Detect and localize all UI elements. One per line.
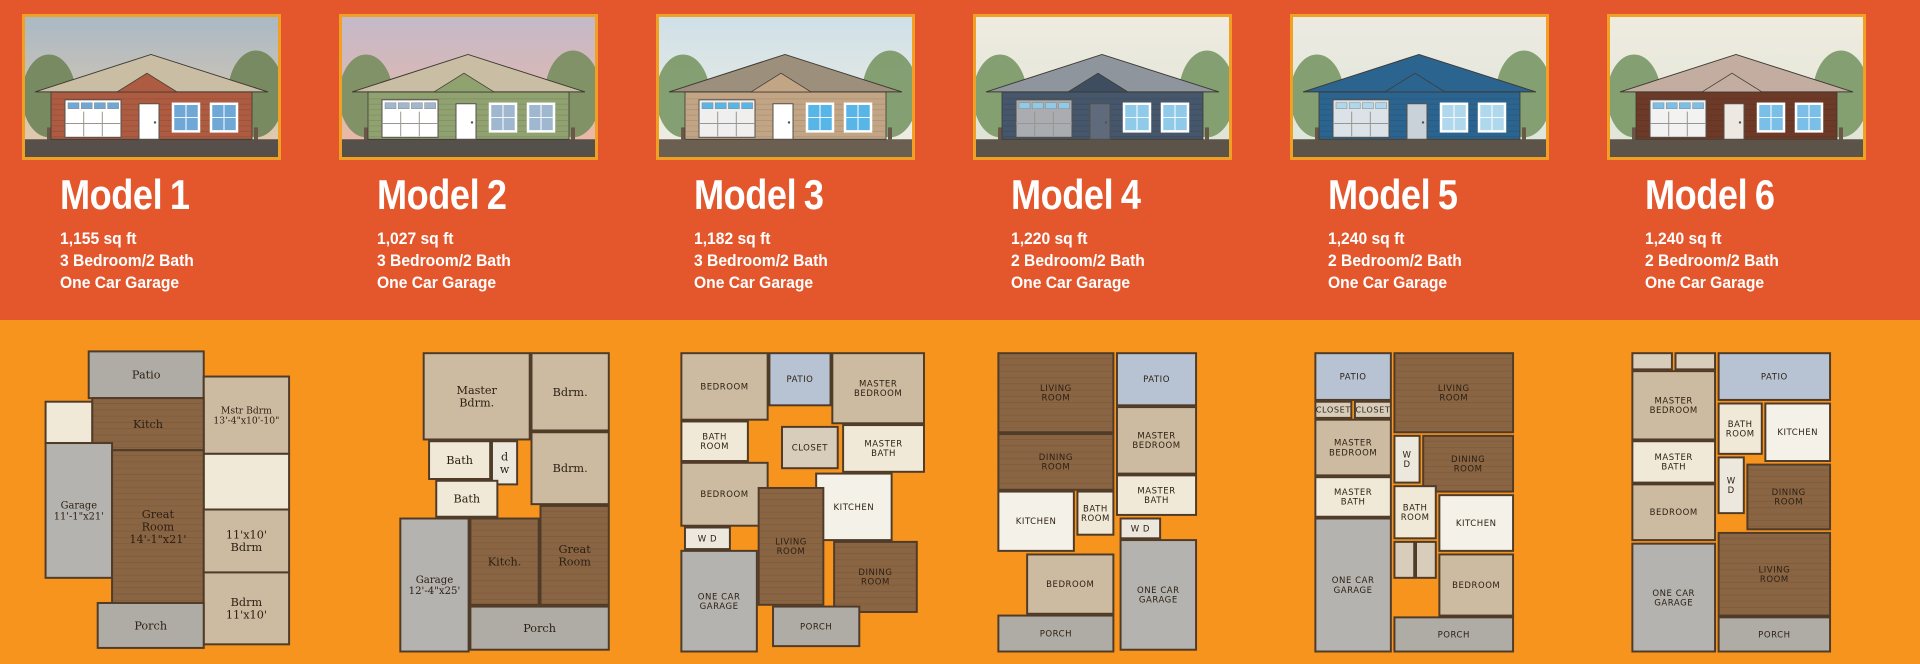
svg-text:KITCHEN: KITCHEN bbox=[1456, 519, 1497, 529]
room-closet: CLOSET bbox=[1355, 402, 1391, 418]
model-2-card: Model2 1,027 sq ft 3 Bedroom/2 Bath One … bbox=[339, 0, 630, 664]
model-2-elevation-image bbox=[339, 14, 598, 160]
model-sqft: 1,027 sq ft bbox=[377, 228, 511, 250]
tan-siding-house-elevation bbox=[659, 17, 912, 157]
room-dining: DININGROOM bbox=[1423, 436, 1513, 492]
room-bedroom: BEDROOM bbox=[1632, 484, 1715, 540]
svg-text:Bdrm11'x10': Bdrm11'x10' bbox=[226, 596, 267, 622]
model-garage: One Car Garage bbox=[1328, 272, 1462, 294]
room-master: MASTERBATH bbox=[1117, 475, 1196, 515]
model-title-word: Model bbox=[694, 171, 796, 218]
model-bedbath: 3 Bedroom/2 Bath bbox=[694, 250, 828, 272]
model-1-card: Model1 1,155 sq ft 3 Bedroom/2 Bath One … bbox=[22, 0, 313, 664]
room-kitchen: KITCHEN bbox=[816, 474, 891, 540]
blue-board-and-batten-house-elevation bbox=[1293, 17, 1546, 157]
room-bedroom: BEDROOM bbox=[1027, 554, 1113, 613]
red-siding-cottage-elevation bbox=[25, 17, 278, 157]
svg-text:BEDROOM: BEDROOM bbox=[1046, 580, 1094, 590]
room-porch: Porch bbox=[97, 603, 203, 648]
room-d: dw bbox=[492, 441, 517, 484]
svg-text:LIVINGROOM: LIVINGROOM bbox=[1758, 565, 1790, 585]
svg-text:W D: W D bbox=[697, 534, 716, 544]
room-closet bbox=[1416, 542, 1436, 578]
ground bbox=[342, 139, 595, 157]
model-6-floorplan: MASTERBEDROOMPATIOBATHROOMKITCHENMASTERB… bbox=[1607, 346, 1898, 656]
model-garage: One Car Garage bbox=[377, 272, 511, 294]
room-great: GreatRoom bbox=[540, 506, 608, 605]
model-1-floorplan: PatioMstr Bdrm13'-4"x10'-10"KitchGarage1… bbox=[22, 346, 313, 656]
model-specs: 1,155 sq ft 3 Bedroom/2 Bath One Car Gar… bbox=[60, 228, 194, 294]
model-3-elevation-image bbox=[656, 14, 915, 160]
model-4-elevation-image bbox=[973, 14, 1232, 160]
room-bdrm-: Bdrm. bbox=[531, 432, 608, 504]
svg-text:ONE CARGARAGE: ONE CARGARAGE bbox=[1137, 586, 1180, 606]
room-bath: BATHROOM bbox=[1077, 492, 1113, 535]
model-homes-brochure: Model1 1,155 sq ft 3 Bedroom/2 Bath One … bbox=[0, 0, 1920, 664]
room-porch: PORCH bbox=[998, 616, 1113, 652]
room-living: LIVINGROOM bbox=[758, 488, 823, 605]
model-6-elevation-image bbox=[1607, 14, 1866, 160]
room-kitchen: KITCHEN bbox=[1765, 404, 1830, 462]
model-6-card: Model6 1,240 sq ft 2 Bedroom/2 Bath One … bbox=[1607, 0, 1898, 664]
svg-text:ONE CARGARAGE: ONE CARGARAGE bbox=[1652, 589, 1695, 609]
model-title-number: 3 bbox=[804, 171, 824, 218]
front-door bbox=[456, 104, 476, 139]
model-title-word: Model bbox=[60, 171, 162, 218]
room-living: LIVINGROOM bbox=[1718, 533, 1829, 616]
room-bedroom: BEDROOM bbox=[681, 353, 767, 419]
svg-text:BEDROOM: BEDROOM bbox=[700, 382, 748, 392]
model-title-word: Model bbox=[1328, 171, 1430, 218]
svg-text:LIVINGROOM: LIVINGROOM bbox=[775, 538, 807, 558]
front-door bbox=[773, 104, 793, 139]
room-bath bbox=[203, 454, 288, 510]
room-master: MASTERBEDROOM bbox=[1315, 420, 1390, 476]
model-sqft: 1,155 sq ft bbox=[60, 228, 194, 250]
svg-text:Porch: Porch bbox=[523, 622, 556, 635]
front-door bbox=[1090, 104, 1110, 139]
model-sqft: 1,240 sq ft bbox=[1645, 228, 1779, 250]
model-garage: One Car Garage bbox=[694, 272, 828, 294]
room-closet bbox=[1632, 353, 1672, 369]
room-closet bbox=[1394, 542, 1414, 578]
room-master: MASTERBATH bbox=[843, 425, 924, 472]
model-title: Model1 bbox=[60, 174, 190, 216]
room-living: LIVINGROOM bbox=[1394, 353, 1513, 432]
svg-text:LIVINGROOM: LIVINGROOM bbox=[1438, 384, 1470, 404]
model-3-floorplan: BEDROOMPATIOMASTERBEDROOMBATHROOMCLOSETM… bbox=[656, 346, 947, 656]
room-mstr-bdrm: Mstr Bdrm13'-4"x10'-10" bbox=[203, 377, 288, 454]
room-kitchen: KITCHEN bbox=[998, 492, 1073, 551]
room-one-car: ONE CARGARAGE bbox=[1315, 519, 1390, 652]
svg-text:BATHROOM: BATHROOM bbox=[1081, 504, 1110, 524]
front-door bbox=[1407, 104, 1427, 139]
svg-text:MasterBdrm.: MasterBdrm. bbox=[456, 384, 497, 410]
model-garage: One Car Garage bbox=[1011, 272, 1145, 294]
svg-text:BEDROOM: BEDROOM bbox=[1649, 508, 1697, 518]
room-porch: PORCH bbox=[1718, 617, 1829, 651]
room-11-x10-: 11'x10'Bdrm bbox=[203, 510, 288, 573]
ground bbox=[1293, 139, 1546, 157]
room-patio: PATIO bbox=[1117, 353, 1196, 405]
svg-text:W D: W D bbox=[1130, 524, 1149, 534]
room-master: MASTERBEDROOM bbox=[832, 353, 924, 423]
model-title-word: Model bbox=[377, 171, 479, 218]
svg-text:CLOSET: CLOSET bbox=[1355, 405, 1391, 415]
room-one-car: ONE CARGARAGE bbox=[681, 551, 756, 652]
room-kitch-: Kitch. bbox=[470, 519, 538, 605]
model-title: Model6 bbox=[1645, 174, 1775, 216]
room-w: WD bbox=[1394, 436, 1419, 483]
room-kitchen: KITCHEN bbox=[1439, 495, 1513, 551]
svg-text:WD: WD bbox=[1726, 476, 1735, 496]
svg-text:DININGROOM: DININGROOM bbox=[858, 568, 892, 588]
model-1-elevation-image bbox=[22, 14, 281, 160]
svg-text:CLOSET: CLOSET bbox=[1316, 405, 1352, 415]
room-bath: BATHROOM bbox=[681, 421, 747, 461]
model-bedbath: 2 Bedroom/2 Bath bbox=[1011, 250, 1145, 272]
room-bedroom: BEDROOM bbox=[1439, 554, 1513, 615]
model-sqft: 1,182 sq ft bbox=[694, 228, 828, 250]
room-bath: BATHROOM bbox=[1718, 404, 1761, 454]
svg-text:MASTERBEDROOM: MASTERBEDROOM bbox=[854, 379, 902, 399]
model-5-elevation-image bbox=[1290, 14, 1549, 160]
room-one-car: ONE CARGARAGE bbox=[1120, 540, 1195, 650]
svg-text:PORCH: PORCH bbox=[800, 622, 832, 632]
dark-slate-modern-house-elevation bbox=[976, 17, 1229, 157]
svg-text:DININGROOM: DININGROOM bbox=[1771, 488, 1805, 508]
model-specs: 1,220 sq ft 2 Bedroom/2 Bath One Car Gar… bbox=[1011, 228, 1145, 294]
model-sqft: 1,240 sq ft bbox=[1328, 228, 1462, 250]
room-bedroom: BEDROOM bbox=[681, 463, 767, 526]
model-4-card: Model4 1,220 sq ft 2 Bedroom/2 Bath One … bbox=[973, 0, 1264, 664]
room-bdrm-: Bdrm. bbox=[531, 353, 608, 430]
svg-text:PORCH: PORCH bbox=[1039, 630, 1071, 640]
model-4-floorplan: LIVINGROOMPATIOMASTERBEDROOMDININGROOMMA… bbox=[973, 346, 1264, 656]
ground bbox=[659, 139, 912, 157]
svg-text:GreatRoom: GreatRoom bbox=[558, 543, 591, 569]
svg-text:PATIO: PATIO bbox=[786, 375, 813, 385]
svg-text:ONE CARGARAGE: ONE CARGARAGE bbox=[1332, 576, 1375, 596]
svg-text:PATIO: PATIO bbox=[1339, 373, 1366, 383]
svg-text:KITCHEN: KITCHEN bbox=[1777, 428, 1818, 438]
model-title-word: Model bbox=[1645, 171, 1747, 218]
model-specs: 1,240 sq ft 2 Bedroom/2 Bath One Car Gar… bbox=[1328, 228, 1462, 294]
svg-text:BATHROOM: BATHROOM bbox=[1726, 420, 1755, 440]
model-title-number: 5 bbox=[1438, 171, 1458, 218]
svg-text:Patio: Patio bbox=[132, 369, 161, 382]
ground bbox=[1610, 139, 1863, 157]
svg-text:DININGROOM: DININGROOM bbox=[1039, 453, 1073, 473]
front-door bbox=[1724, 104, 1744, 139]
room-patio: PATIO bbox=[1718, 353, 1829, 400]
svg-text:LIVINGROOM: LIVINGROOM bbox=[1040, 384, 1072, 404]
svg-text:11'x10'Bdrm: 11'x10'Bdrm bbox=[226, 529, 267, 555]
svg-text:PATIO: PATIO bbox=[1143, 375, 1170, 385]
svg-text:Porch: Porch bbox=[134, 619, 167, 632]
room-dining: DININGROOM bbox=[998, 434, 1113, 490]
model-title-number: 1 bbox=[170, 171, 190, 218]
svg-text:MASTERBEDROOM: MASTERBEDROOM bbox=[1132, 432, 1180, 452]
svg-text:Bdrm.: Bdrm. bbox=[552, 386, 587, 399]
svg-text:MASTERBEDROOM: MASTERBEDROOM bbox=[1649, 397, 1697, 417]
front-door bbox=[139, 104, 159, 139]
svg-text:MASTERBEDROOM: MASTERBEDROOM bbox=[1329, 439, 1377, 459]
svg-text:PORCH: PORCH bbox=[1758, 630, 1790, 640]
model-specs: 1,240 sq ft 2 Bedroom/2 Bath One Car Gar… bbox=[1645, 228, 1779, 294]
room-w: WD bbox=[1718, 457, 1743, 513]
room-master: MASTERBEDROOM bbox=[1117, 407, 1196, 473]
room-w-d: W D bbox=[1120, 519, 1160, 539]
svg-text:BEDROOM: BEDROOM bbox=[1452, 581, 1500, 591]
room-closet: CLOSET bbox=[1315, 402, 1351, 418]
svg-text:BATHROOM: BATHROOM bbox=[700, 432, 729, 452]
room-porch: PORCH bbox=[1394, 617, 1513, 651]
room-master: MASTERBATH bbox=[1632, 441, 1715, 482]
room-dining: DININGROOM bbox=[834, 542, 917, 612]
room-living: LIVINGROOM bbox=[998, 353, 1113, 432]
room-master: MASTERBATH bbox=[1315, 477, 1390, 517]
room-bath: Bath bbox=[429, 441, 490, 479]
model-title-number: 4 bbox=[1121, 171, 1141, 218]
svg-text:WD: WD bbox=[1402, 450, 1411, 470]
model-title: Model5 bbox=[1328, 174, 1458, 216]
room-closet: CLOSET bbox=[782, 427, 838, 468]
svg-text:BATHROOM: BATHROOM bbox=[1400, 503, 1429, 523]
ground bbox=[25, 139, 278, 157]
svg-text:Garage11'-1"x21': Garage11'-1"x21' bbox=[53, 500, 103, 522]
model-3-card: Model3 1,182 sq ft 3 Bedroom/2 Bath One … bbox=[656, 0, 947, 664]
svg-text:KITCHEN: KITCHEN bbox=[833, 503, 874, 513]
room-one-car: ONE CARGARAGE bbox=[1632, 544, 1715, 652]
svg-text:Bath: Bath bbox=[453, 493, 480, 506]
model-bedbath: 3 Bedroom/2 Bath bbox=[60, 250, 194, 272]
room-patio: Patio bbox=[88, 351, 203, 398]
room-bdrm: Bdrm11'x10' bbox=[203, 572, 288, 644]
model-specs: 1,027 sq ft 3 Bedroom/2 Bath One Car Gar… bbox=[377, 228, 511, 294]
model-specs: 1,182 sq ft 3 Bedroom/2 Bath One Car Gar… bbox=[694, 228, 828, 294]
model-columns: Model1 1,155 sq ft 3 Bedroom/2 Bath One … bbox=[0, 0, 1920, 664]
room-bath: Bath bbox=[436, 481, 497, 517]
model-title: Model3 bbox=[694, 174, 824, 216]
svg-text:Mstr Bdrm13'-4"x10'-10": Mstr Bdrm13'-4"x10'-10" bbox=[213, 405, 279, 426]
room-bath bbox=[45, 402, 92, 443]
model-5-card: Model5 1,240 sq ft 2 Bedroom/2 Bath One … bbox=[1290, 0, 1581, 664]
room-w-d: W D bbox=[685, 528, 730, 550]
room-dining: DININGROOM bbox=[1747, 465, 1830, 530]
ground bbox=[976, 139, 1229, 157]
model-bedbath: 2 Bedroom/2 Bath bbox=[1328, 250, 1462, 272]
room-master: MasterBdrm. bbox=[423, 353, 529, 439]
room-porch: PORCH bbox=[773, 607, 859, 647]
model-sqft: 1,220 sq ft bbox=[1011, 228, 1145, 250]
room-garage: Garage11'-1"x21' bbox=[45, 443, 111, 578]
room-bath: BATHROOM bbox=[1394, 486, 1435, 538]
model-title: Model2 bbox=[377, 174, 507, 216]
svg-text:PATIO: PATIO bbox=[1761, 373, 1788, 383]
svg-text:DININGROOM: DININGROOM bbox=[1451, 455, 1485, 475]
model-title-number: 2 bbox=[487, 171, 507, 218]
model-title: Model4 bbox=[1011, 174, 1141, 216]
red-brick-house-elevation bbox=[1610, 17, 1863, 157]
room-patio: PATIO bbox=[1315, 353, 1390, 400]
svg-text:Kitch.: Kitch. bbox=[487, 556, 521, 569]
model-title-word: Model bbox=[1011, 171, 1113, 218]
room-patio: PATIO bbox=[769, 353, 830, 405]
room-closet bbox=[1675, 353, 1715, 369]
svg-text:CLOSET: CLOSET bbox=[791, 444, 828, 454]
svg-text:Garage12'-4"x25': Garage12'-4"x25' bbox=[408, 575, 460, 597]
model-title-number: 6 bbox=[1755, 171, 1775, 218]
room-great: GreatRoom14'-1"x21' bbox=[112, 450, 204, 603]
svg-text:PORCH: PORCH bbox=[1437, 630, 1469, 640]
svg-text:BEDROOM: BEDROOM bbox=[700, 490, 748, 500]
room-porch: Porch bbox=[470, 607, 608, 650]
model-garage: One Car Garage bbox=[60, 272, 194, 294]
room-master: MASTERBEDROOM bbox=[1632, 371, 1715, 439]
svg-text:Bath: Bath bbox=[446, 454, 473, 467]
svg-text:KITCHEN: KITCHEN bbox=[1015, 517, 1056, 527]
room-garage: Garage12'-4"x25' bbox=[400, 519, 468, 652]
model-bedbath: 3 Bedroom/2 Bath bbox=[377, 250, 511, 272]
svg-text:Bdrm.: Bdrm. bbox=[552, 462, 587, 475]
model-2-floorplan: MasterBdrm.Bdrm.BathdwBdrm.BathKitch.Gre… bbox=[339, 346, 630, 656]
model-bedbath: 2 Bedroom/2 Bath bbox=[1645, 250, 1779, 272]
svg-text:ONE CARGARAGE: ONE CARGARAGE bbox=[698, 592, 741, 612]
model-5-floorplan: PATIOLIVINGROOMCLOSETCLOSETMASTERBEDROOM… bbox=[1290, 346, 1581, 656]
svg-text:Kitch: Kitch bbox=[133, 418, 163, 431]
green-siding-cottage-elevation bbox=[342, 17, 595, 157]
model-garage: One Car Garage bbox=[1645, 272, 1779, 294]
